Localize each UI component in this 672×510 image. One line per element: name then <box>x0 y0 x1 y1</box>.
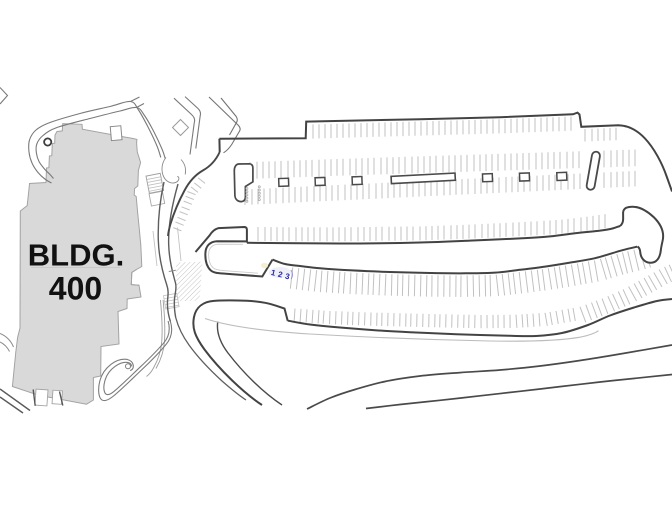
svg-text:BLDG.: BLDG. <box>28 238 124 273</box>
svg-text:400: 400 <box>49 271 102 307</box>
